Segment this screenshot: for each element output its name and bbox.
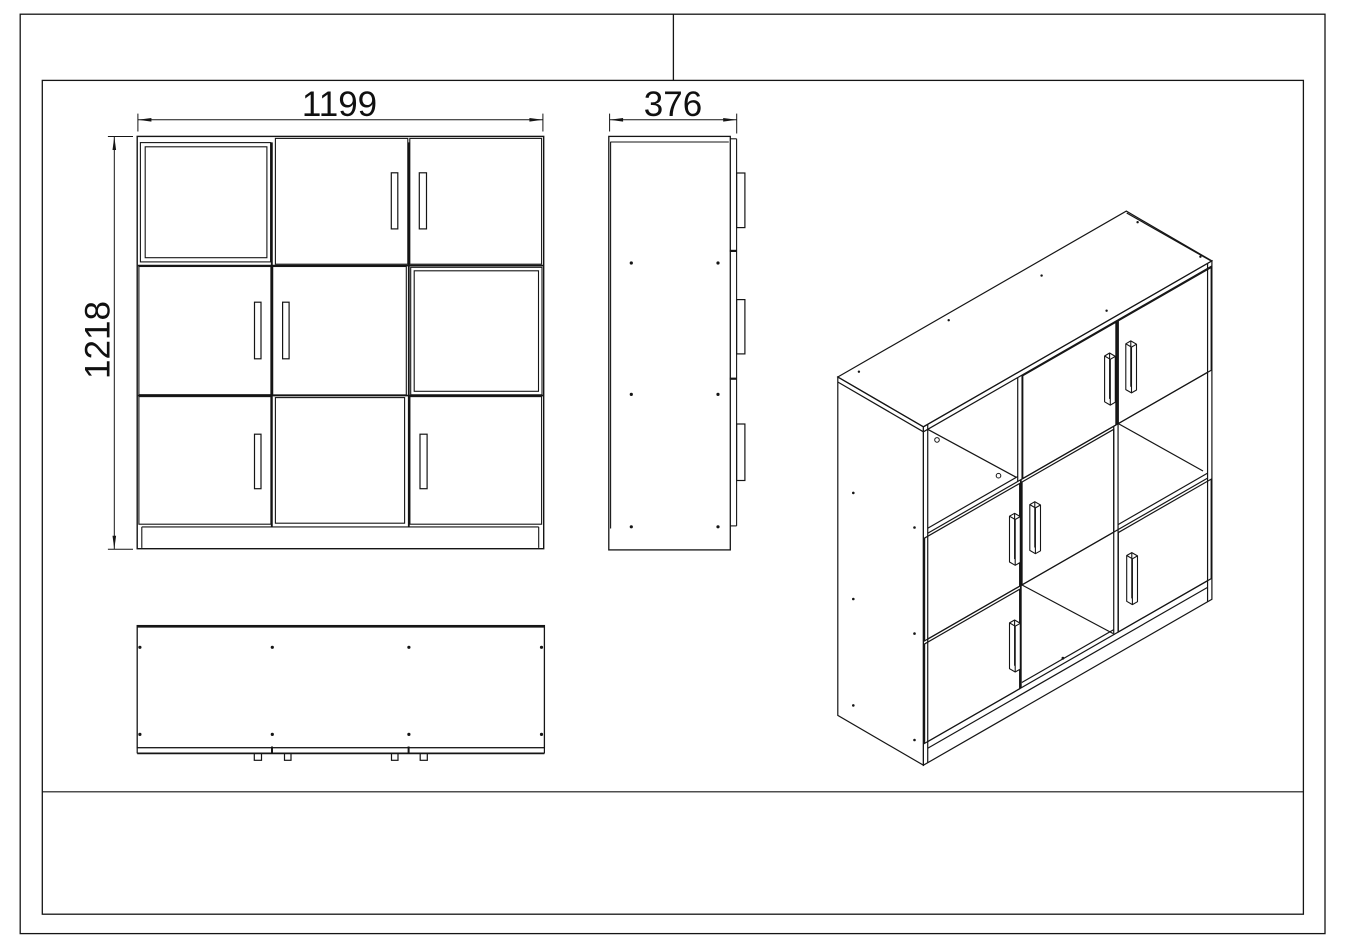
svg-text:1199: 1199	[302, 85, 377, 124]
svg-text:376: 376	[644, 85, 702, 124]
svg-text:1218: 1218	[79, 301, 118, 379]
